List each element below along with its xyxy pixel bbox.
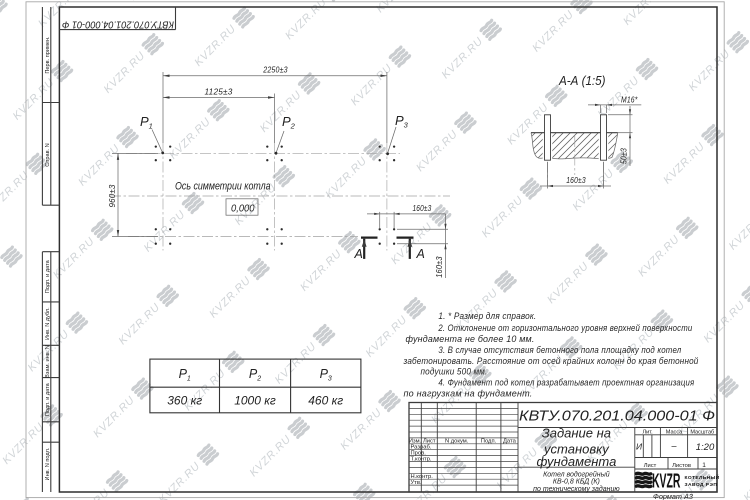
svg-text:KVZR.RU: KVZR.RU bbox=[116, 301, 162, 347]
svg-text:КВТУ.070.201.04.000-01 Ф: КВТУ.070.201.04.000-01 Ф bbox=[519, 408, 715, 425]
svg-text:КОТЕЛЬНЫЙ: КОТЕЛЬНЫЙ bbox=[685, 473, 720, 481]
svg-text:KVZR.RU: KVZR.RU bbox=[661, 140, 707, 186]
svg-text:50±3: 50±3 bbox=[619, 148, 629, 164]
svg-text:Ось симметрии котла: Ось симметрии котла bbox=[175, 181, 271, 193]
svg-text:KVZR.RU: KVZR.RU bbox=[687, 48, 733, 94]
svg-text:Подп. и дата: Подп. и дата bbox=[45, 259, 51, 293]
svg-text:Справ. N: Справ. N bbox=[45, 143, 51, 166]
svg-text:KVZR.RU: KVZR.RU bbox=[273, 340, 319, 386]
svg-text:KVZR.RU: KVZR.RU bbox=[298, 248, 344, 294]
svg-text:Котел водогрейный: Котел водогрейный bbox=[543, 471, 610, 479]
svg-text:Взам. инв. N: Взам. инв. N bbox=[45, 345, 51, 378]
svg-text:Дата: Дата bbox=[503, 439, 517, 445]
svg-text:3. В случае отсутствия бетонно: 3. В случае отсутствия бетонного пола пл… bbox=[438, 345, 681, 355]
svg-text:Формат А3: Формат А3 bbox=[653, 492, 693, 500]
svg-text:Листов: Листов bbox=[672, 463, 691, 469]
svg-text:KVZR.RU: KVZR.RU bbox=[258, 89, 304, 135]
svg-text:Задание на: Задание на bbox=[542, 426, 611, 441]
svg-text:KVZR.RU: KVZR.RU bbox=[51, 235, 97, 281]
svg-text:KVZR.RU: KVZR.RU bbox=[621, 0, 667, 28]
svg-text:KVZR.RU: KVZR.RU bbox=[480, 194, 526, 240]
svg-text:KVZR.RU: KVZR.RU bbox=[712, 0, 750, 1]
svg-text:KVZR.RU: KVZR.RU bbox=[142, 208, 188, 254]
svg-text:P1: P1 bbox=[179, 367, 191, 383]
svg-text:KVZR.RU: KVZR.RU bbox=[76, 142, 122, 188]
svg-text:KVZR.RU: KVZR.RU bbox=[545, 260, 591, 306]
svg-text:Т.контр.: Т.контр. bbox=[411, 456, 432, 462]
svg-text:KVZR.RU: KVZR.RU bbox=[364, 314, 410, 360]
svg-text:KVZR.RU: KVZR.RU bbox=[439, 35, 485, 81]
svg-text:KVZR.RU: KVZR.RU bbox=[247, 433, 293, 479]
svg-text:1. * Размер для справок.: 1. * Размер для справок. bbox=[438, 311, 536, 321]
svg-text:KVZR.RU: KVZR.RU bbox=[167, 116, 213, 162]
svg-text:1:20: 1:20 bbox=[696, 442, 715, 453]
svg-text:Утв.: Утв. bbox=[411, 480, 422, 486]
svg-text:KVZR.RU: KVZR.RU bbox=[11, 76, 57, 122]
svg-text:P3: P3 bbox=[395, 113, 409, 130]
svg-text:Инв. N подл.: Инв. N подл. bbox=[45, 447, 51, 480]
svg-text:1: 1 bbox=[702, 462, 706, 469]
svg-text:И: И bbox=[636, 442, 643, 452]
svg-text:Масштаб: Масштаб bbox=[690, 429, 714, 435]
svg-text:0,000: 0,000 bbox=[231, 203, 255, 215]
svg-text:Лист: Лист bbox=[644, 463, 657, 469]
svg-text:КВТУ.070.201.04.000-01 Ф: КВТУ.070.201.04.000-01 Ф bbox=[62, 18, 174, 29]
svg-text:KVZR.RU: KVZR.RU bbox=[349, 62, 395, 108]
svg-text:460 кг: 460 кг bbox=[308, 394, 343, 408]
svg-text:4. Фундамент под котел разраба: 4. Фундамент под котел разрабатывает про… bbox=[438, 378, 694, 388]
svg-text:2. Отклонение от горизонтально: 2. Отклонение от горизонтального уровня … bbox=[438, 323, 693, 333]
svg-text:KVZR.RU: KVZR.RU bbox=[636, 233, 682, 279]
svg-text:P2: P2 bbox=[249, 367, 261, 383]
svg-text:фундамента не более 10 мм.: фундамента не более 10 мм. bbox=[406, 334, 535, 344]
svg-text:KVZR.RU: KVZR.RU bbox=[91, 394, 137, 440]
svg-text:1125±3: 1125±3 bbox=[205, 86, 233, 96]
svg-text:360 кг: 360 кг bbox=[167, 394, 202, 408]
svg-text:KVZR.RU: KVZR.RU bbox=[207, 274, 253, 320]
svg-text:А: А bbox=[354, 247, 363, 261]
svg-text:KVZR.RU: KVZR.RU bbox=[157, 460, 203, 500]
svg-text:KVZR: KVZR bbox=[652, 470, 681, 493]
svg-text:по нагрузкам на фундамент.: по нагрузкам на фундамент. bbox=[404, 388, 533, 398]
svg-text:160±3: 160±3 bbox=[434, 256, 444, 278]
svg-text:Инв. N дубл.: Инв. N дубл. bbox=[45, 307, 51, 340]
svg-text:KVZR.RU: KVZR.RU bbox=[742, 458, 750, 500]
svg-text:ЗАВОД РЭП: ЗАВОД РЭП bbox=[685, 482, 718, 488]
svg-text:P3: P3 bbox=[320, 367, 332, 383]
svg-text:фундамента: фундамента bbox=[536, 454, 616, 469]
svg-text:KVZR.RU: KVZR.RU bbox=[0, 421, 46, 467]
svg-text:KVZR.RU: KVZR.RU bbox=[414, 128, 460, 174]
svg-text:N докум.: N докум. bbox=[445, 439, 469, 445]
svg-text:Подп.: Подп. bbox=[481, 439, 497, 445]
svg-text:1000 кг: 1000 кг bbox=[234, 394, 276, 408]
svg-text:Перв. примен.: Перв. примен. bbox=[45, 36, 51, 74]
svg-text:P2: P2 bbox=[282, 114, 296, 131]
svg-text:2250±3: 2250±3 bbox=[262, 65, 288, 75]
svg-text:160±3: 160±3 bbox=[413, 203, 432, 213]
svg-text:КВ-0,8 КБД (К): КВ-0,8 КБД (К) bbox=[553, 479, 600, 486]
svg-text:Масса: Масса bbox=[666, 429, 683, 435]
svg-text:А: А bbox=[416, 247, 425, 261]
svg-text:P1: P1 bbox=[140, 114, 153, 131]
svg-text:KVZR.RU: KVZR.RU bbox=[727, 206, 750, 252]
svg-text:KVZR.RU: KVZR.RU bbox=[530, 8, 576, 54]
svg-text:Подп. и дата: Подп. и дата bbox=[45, 382, 51, 416]
svg-text:А-А (1:5): А-А (1:5) bbox=[558, 73, 605, 88]
svg-text:забетонировать. Расстояние от: забетонировать. Расстояние от осей крайн… bbox=[403, 356, 699, 366]
svg-text:KVZR.RU: KVZR.RU bbox=[192, 23, 238, 69]
svg-text:KVZR.RU: KVZR.RU bbox=[102, 50, 148, 96]
svg-text:подушки 500 мм.: подушки 500 мм. bbox=[421, 367, 488, 377]
svg-text:–: – bbox=[670, 441, 677, 451]
svg-text:М16*: М16* bbox=[621, 94, 638, 104]
svg-text:KVZR.RU: KVZR.RU bbox=[323, 155, 369, 201]
svg-text:KVZR.RU: KVZR.RU bbox=[0, 169, 32, 215]
svg-text:по техническому заданию: по техническому заданию bbox=[533, 485, 620, 493]
svg-text:960±3: 960±3 bbox=[107, 184, 117, 207]
svg-text:Лит.: Лит. bbox=[642, 429, 653, 435]
svg-text:160±3: 160±3 bbox=[566, 175, 586, 185]
